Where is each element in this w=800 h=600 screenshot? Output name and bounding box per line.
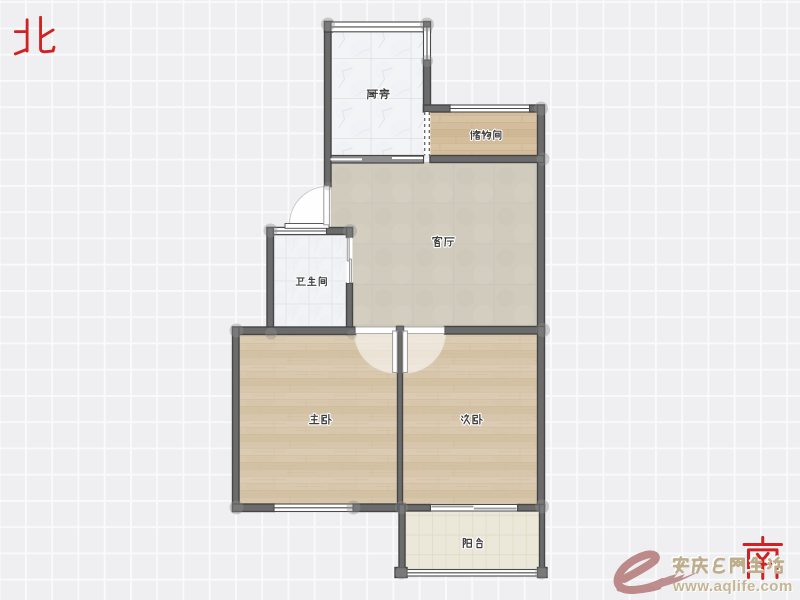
svg-text:www.aqlife.com: www.aqlife.com [672,578,793,595]
